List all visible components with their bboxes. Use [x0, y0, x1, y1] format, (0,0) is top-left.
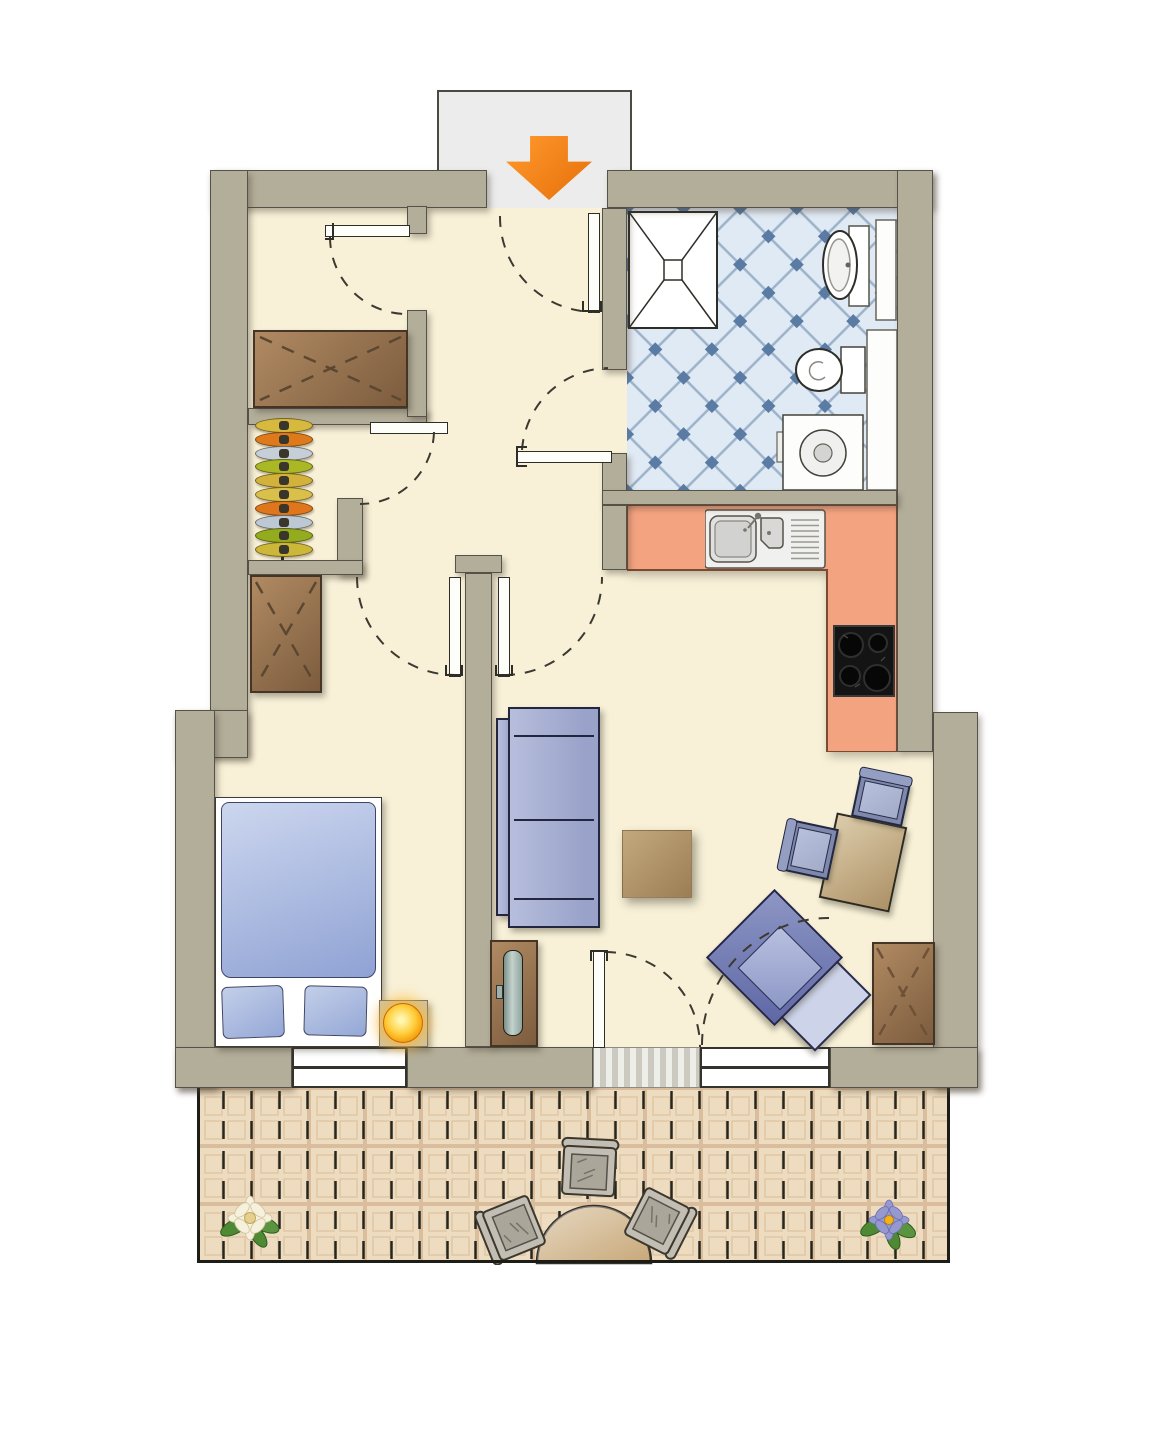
door-stop — [496, 665, 512, 675]
closet-door-swing — [330, 237, 407, 314]
balcony-door-swing — [605, 952, 700, 1047]
bathroom-door-swing — [522, 368, 608, 450]
wardrobe-cross — [260, 337, 401, 400]
wardrobe-cross — [256, 582, 316, 686]
window-swing — [702, 918, 829, 1045]
living-door-swing — [504, 577, 602, 675]
bedroom-door-swing — [357, 577, 455, 675]
door-stop — [325, 223, 333, 239]
coat-door-swing — [360, 432, 434, 504]
entrance-door-swing — [500, 216, 594, 312]
plan-overlay — [0, 0, 1172, 1440]
door-stop — [591, 951, 607, 961]
door-stop — [446, 665, 462, 675]
floor-plan — [0, 0, 1172, 1440]
door-stop — [583, 301, 601, 311]
sideboard-cross — [877, 948, 929, 1039]
